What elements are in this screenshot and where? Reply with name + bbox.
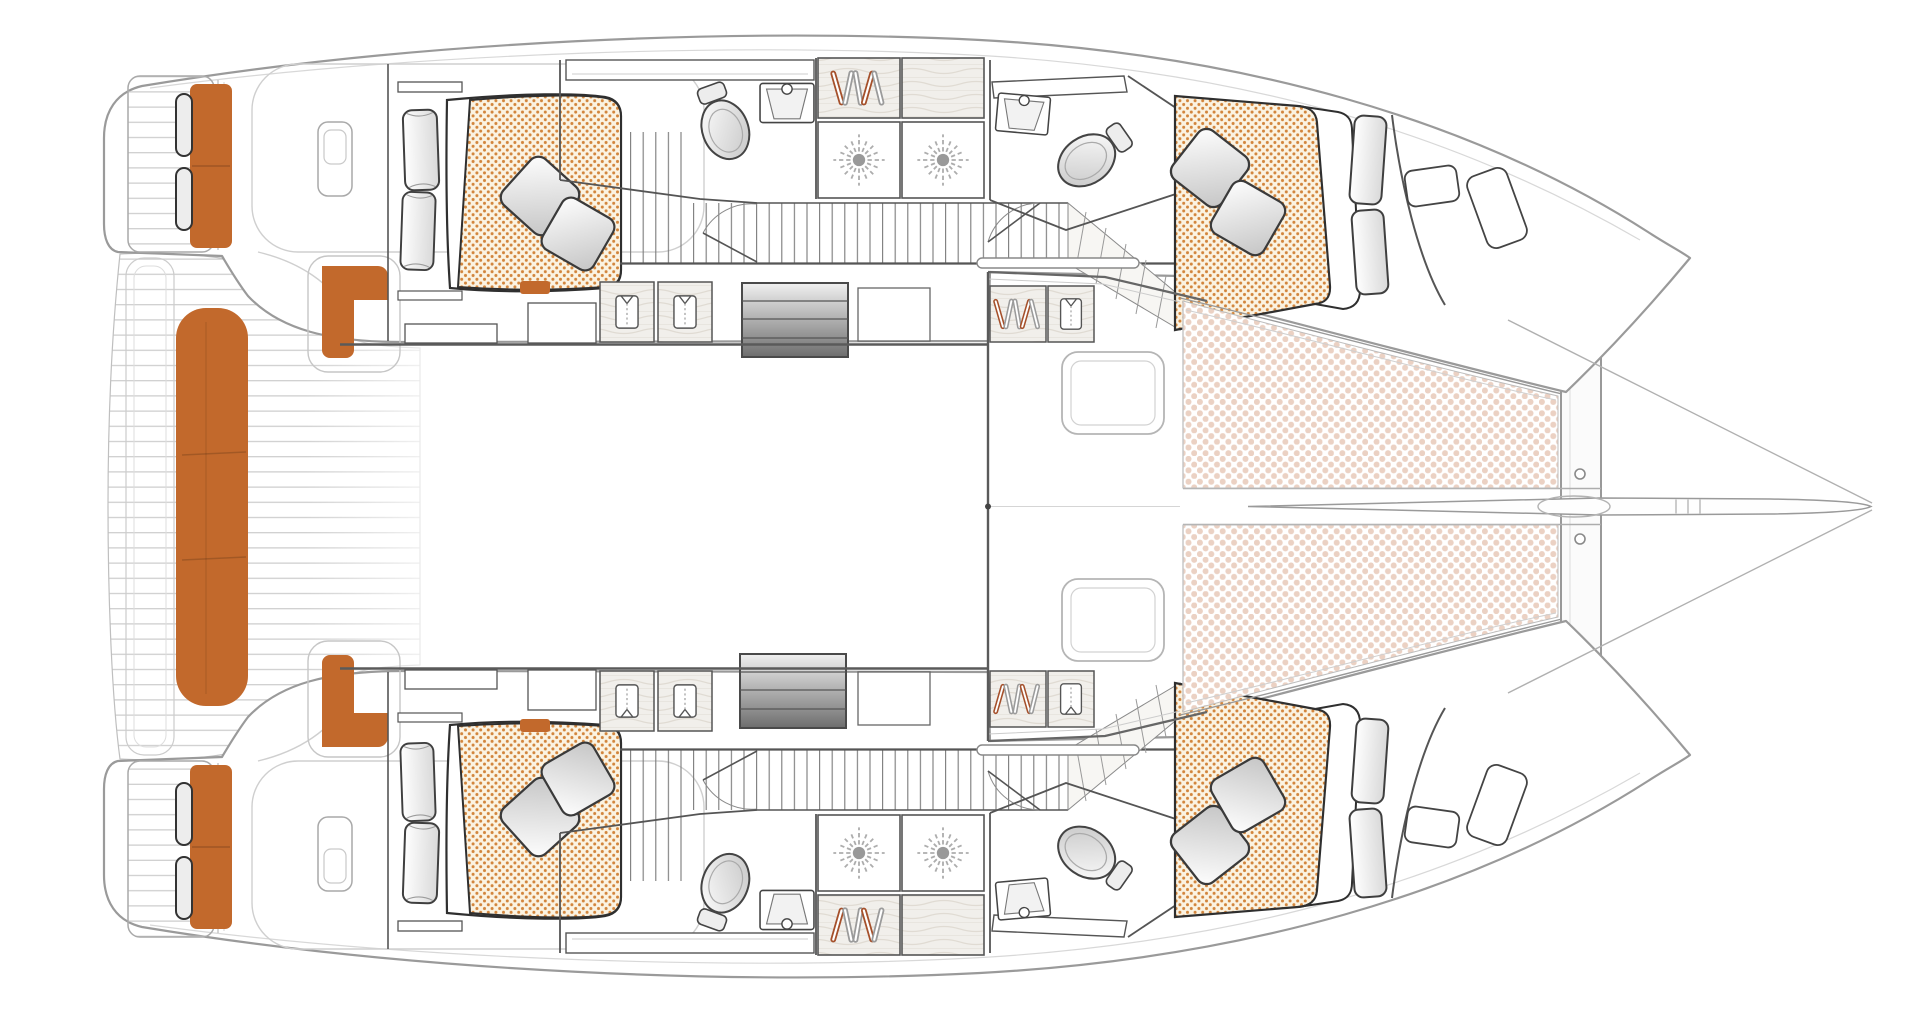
companionway-stairs-port	[742, 283, 848, 357]
catamaran-floorplan	[0, 0, 1920, 1013]
beam-fitting	[1575, 469, 1585, 479]
companionway-stairs-starboard	[740, 654, 846, 728]
catamaran-floorplan-page	[0, 0, 1920, 1013]
aft-bench	[176, 308, 248, 706]
center-fitting	[985, 504, 991, 510]
beam-fitting	[1575, 534, 1585, 544]
